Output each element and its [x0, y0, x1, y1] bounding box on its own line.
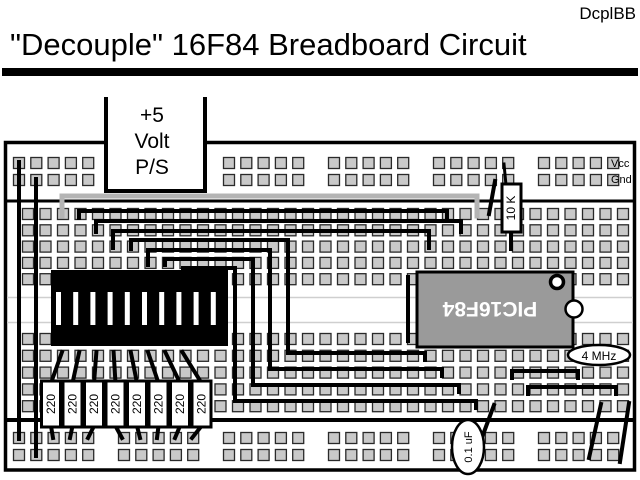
- breadboard-hole: [48, 158, 59, 169]
- breadboard-hole: [548, 350, 559, 361]
- series-resistor: 220: [63, 381, 82, 427]
- breadboard-hole: [608, 433, 619, 444]
- resistor-value-label: 220: [195, 394, 209, 414]
- breadboard-hole: [556, 433, 567, 444]
- breadboard-hole: [215, 350, 226, 361]
- breadboard-hole: [468, 158, 479, 169]
- breadboard-hole: [565, 209, 576, 220]
- breadboard-hole: [443, 241, 454, 252]
- pullup-resistor-label: 10 K: [504, 196, 518, 221]
- breadboard-hole: [600, 367, 611, 378]
- dip-switch-slot: [159, 292, 164, 325]
- breadboard-hole: [556, 450, 567, 461]
- breadboard-hole: [583, 274, 594, 285]
- breadboard-hole: [398, 175, 409, 186]
- title-rule: [2, 68, 638, 76]
- breadboard-hole: [65, 175, 76, 186]
- breadboard-hole: [373, 241, 384, 252]
- breadboard-hole: [303, 274, 314, 285]
- breadboard-hole: [539, 175, 550, 186]
- breadboard-hole: [373, 257, 384, 268]
- breadboard-hole: [583, 241, 594, 252]
- breadboard-hole: [241, 175, 252, 186]
- chip-notch: [566, 301, 583, 318]
- breadboard-hole: [40, 257, 51, 268]
- breadboard-hole: [513, 384, 524, 395]
- power-supply-line2: Volt: [134, 130, 169, 153]
- breadboard-hole: [434, 450, 445, 461]
- breadboard-hole: [224, 450, 235, 461]
- breadboard-hole: [408, 241, 419, 252]
- breadboard-hole: [485, 450, 496, 461]
- breadboard-hole: [275, 450, 286, 461]
- dip-switch-slot: [142, 292, 147, 325]
- breadboard-hole: [398, 433, 409, 444]
- breadboard-hole: [40, 241, 51, 252]
- resistor-top-lead: [94, 352, 96, 383]
- breadboard-hole: [530, 209, 541, 220]
- breadboard-hole: [583, 257, 594, 268]
- vcc-label: Vcc: [611, 158, 630, 170]
- breadboard-hole: [478, 225, 489, 236]
- breadboard-hole: [530, 225, 541, 236]
- resistor-value-label: 220: [130, 394, 144, 414]
- gnd-label: Gnd: [611, 174, 632, 186]
- breadboard-hole: [241, 450, 252, 461]
- breadboard-hole: [618, 241, 629, 252]
- breadboard-hole: [530, 241, 541, 252]
- breadboard-hole: [188, 450, 199, 461]
- breadboard-hole: [495, 350, 506, 361]
- pin1-dot: [551, 276, 564, 289]
- breadboard-hole: [119, 450, 130, 461]
- breadboard-hole: [539, 450, 550, 461]
- breadboard-hole: [329, 175, 340, 186]
- breadboard-hole: [215, 401, 226, 412]
- breadboard-hole: [83, 175, 94, 186]
- capacitor-label: 0.1 uF: [463, 431, 475, 462]
- breadboard-hole: [320, 274, 331, 285]
- breadboard-hole: [495, 367, 506, 378]
- breadboard-hole: [58, 225, 69, 236]
- capacitor-callout: 0.1 uF: [452, 420, 484, 474]
- breadboard-hole: [58, 257, 69, 268]
- breadboard-hole: [215, 367, 226, 378]
- breadboard-hole: [443, 367, 454, 378]
- breadboard-hole: [380, 450, 391, 461]
- breadboard-hole: [136, 450, 147, 461]
- breadboard-hole: [215, 384, 226, 395]
- breadboard-hole: [303, 334, 314, 345]
- breadboard-hole: [565, 257, 576, 268]
- breadboard-hole: [398, 450, 409, 461]
- breadboard-hole: [495, 241, 506, 252]
- breadboard-hole: [390, 274, 401, 285]
- breadboard-hole: [460, 209, 471, 220]
- breadboard-hole: [478, 367, 489, 378]
- breadboard-hole: [495, 257, 506, 268]
- dip-switch-slot: [56, 292, 61, 325]
- breadboard-hole: [275, 175, 286, 186]
- pullup-top-lead: [504, 164, 506, 185]
- breadboard-diagram-page: DcplBB "Decouple" 16F84 Breadboard Circu…: [0, 0, 640, 480]
- breadboard-hole: [258, 433, 269, 444]
- breadboard-hole: [65, 450, 76, 461]
- breadboard-hole: [513, 257, 524, 268]
- series-resistor: 220: [128, 381, 147, 427]
- breadboard-hole: [565, 241, 576, 252]
- breadboard-hole: [31, 158, 42, 169]
- breadboard-hole: [548, 401, 559, 412]
- circuit-diagram: DcplBB "Decouple" 16F84 Breadboard Circu…: [0, 0, 640, 480]
- resonator-label: 4 MHz: [582, 349, 617, 363]
- breadboard-hole: [478, 257, 489, 268]
- breadboard-hole: [224, 433, 235, 444]
- breadboard-hole: [565, 225, 576, 236]
- doc-code: DcplBB: [579, 4, 636, 23]
- breadboard-hole: [40, 334, 51, 345]
- breadboard-hole: [128, 257, 139, 268]
- breadboard-hole: [58, 367, 69, 378]
- breadboard-hole: [556, 158, 567, 169]
- breadboard-hole: [548, 257, 559, 268]
- breadboard-hole: [93, 241, 104, 252]
- breadboard-hole: [398, 158, 409, 169]
- breadboard-hole: [513, 401, 524, 412]
- breadboard-hole: [380, 158, 391, 169]
- breadboard-hole: [390, 334, 401, 345]
- breadboard-hole: [513, 350, 524, 361]
- breadboard-hole: [583, 367, 594, 378]
- resistor-value-label: 220: [109, 394, 123, 414]
- breadboard-hole: [618, 225, 629, 236]
- dip-switch-slot: [73, 292, 78, 325]
- dip-switch-slot: [108, 292, 113, 325]
- breadboard-hole: [530, 350, 541, 361]
- breadboard-hole: [573, 450, 584, 461]
- breadboard-hole: [468, 175, 479, 186]
- breadboard-hole: [338, 257, 349, 268]
- breadboard-hole: [373, 274, 384, 285]
- breadboard-hole: [573, 158, 584, 169]
- breadboard-hole: [346, 433, 357, 444]
- dip-switch-slot: [125, 292, 130, 325]
- breadboard-hole: [443, 350, 454, 361]
- breadboard-hole: [565, 401, 576, 412]
- breadboard-hole: [618, 209, 629, 220]
- breadboard-hole: [170, 450, 181, 461]
- breadboard-hole: [434, 158, 445, 169]
- breadboard-hole: [503, 450, 514, 461]
- breadboard-hole: [451, 175, 462, 186]
- breadboard-hole: [23, 241, 34, 252]
- breadboard-hole: [48, 450, 59, 461]
- breadboard-hole: [434, 433, 445, 444]
- breadboard-hole: [618, 367, 629, 378]
- breadboard-hole: [618, 384, 629, 395]
- breadboard-hole: [258, 175, 269, 186]
- breadboard-hole: [224, 158, 235, 169]
- breadboard-hole: [548, 241, 559, 252]
- breadboard-hole: [478, 384, 489, 395]
- breadboard-hole: [303, 241, 314, 252]
- breadboard-hole: [23, 350, 34, 361]
- breadboard-hole: [363, 433, 374, 444]
- breadboard-hole: [608, 450, 619, 461]
- breadboard-hole: [478, 350, 489, 361]
- breadboard-hole: [380, 433, 391, 444]
- breadboard-hole: [590, 175, 601, 186]
- breadboard-hole: [583, 334, 594, 345]
- breadboard-hole: [83, 158, 94, 169]
- breadboard-hole: [338, 241, 349, 252]
- breadboard-hole: [460, 257, 471, 268]
- breadboard-hole: [556, 175, 567, 186]
- breadboard-hole: [425, 257, 436, 268]
- series-resistors: 220220220220220220220220: [42, 381, 212, 427]
- breadboard-hole: [600, 241, 611, 252]
- breadboard-hole: [65, 158, 76, 169]
- breadboard-hole: [293, 175, 304, 186]
- breadboard-hole: [460, 350, 471, 361]
- breadboard-hole: [93, 257, 104, 268]
- mcu-chip: PIC16F84: [417, 272, 583, 347]
- dip-switch-slot: [90, 292, 95, 325]
- dip-switch-slot: [194, 292, 199, 325]
- breadboard-hole: [460, 367, 471, 378]
- breadboard-hole: [329, 450, 340, 461]
- breadboard-hole: [618, 334, 629, 345]
- series-resistor: 220: [42, 381, 61, 427]
- resistor-top-lead: [114, 352, 116, 383]
- breadboard-hole: [320, 334, 331, 345]
- breadboard-hole: [23, 384, 34, 395]
- dip-switch-slot: [176, 292, 181, 325]
- breadboard-hole: [539, 433, 550, 444]
- resistor-value-label: 220: [152, 394, 166, 414]
- breadboard-hole: [355, 274, 366, 285]
- breadboard-hole: [443, 257, 454, 268]
- breadboard-hole: [478, 241, 489, 252]
- dip-switch-slot: [211, 292, 216, 325]
- breadboard-hole: [600, 334, 611, 345]
- breadboard-hole: [530, 401, 541, 412]
- power-supply-line3: P/S: [135, 156, 169, 179]
- breadboard-hole: [600, 274, 611, 285]
- breadboard-hole: [180, 367, 191, 378]
- breadboard-hole: [548, 209, 559, 220]
- breadboard-hole: [40, 367, 51, 378]
- breadboard-hole: [40, 209, 51, 220]
- breadboard-hole: [434, 175, 445, 186]
- breadboard-hole: [363, 158, 374, 169]
- breadboard-hole: [14, 450, 25, 461]
- breadboard-hole: [495, 401, 506, 412]
- breadboard-hole: [23, 367, 34, 378]
- breadboard-hole: [618, 257, 629, 268]
- resonator-callout: 4 MHz: [568, 345, 630, 365]
- breadboard-hole: [23, 334, 34, 345]
- breadboard-hole: [58, 241, 69, 252]
- breadboard-hole: [83, 450, 94, 461]
- breadboard-hole: [390, 257, 401, 268]
- breadboard-hole: [530, 257, 541, 268]
- breadboard-hole: [75, 257, 86, 268]
- breadboard-hole: [583, 401, 594, 412]
- breadboard-hole: [23, 401, 34, 412]
- breadboard-hole: [355, 257, 366, 268]
- breadboard-hole: [513, 241, 524, 252]
- page-title: "Decouple" 16F84 Breadboard Circuit: [10, 27, 527, 62]
- breadboard-hole: [600, 225, 611, 236]
- breadboard-hole: [329, 158, 340, 169]
- series-resistor: 220: [85, 381, 104, 427]
- series-resistor: 220: [149, 381, 168, 427]
- resistor-value-label: 220: [87, 394, 101, 414]
- power-supply-line1: +5: [140, 104, 164, 127]
- breadboard-hole: [153, 450, 164, 461]
- dip-switch: [51, 270, 228, 346]
- breadboard-hole: [110, 257, 121, 268]
- breadboard-hole: [573, 175, 584, 186]
- breadboard-hole: [539, 158, 550, 169]
- breadboard-hole: [583, 209, 594, 220]
- resistor-value-label: 220: [66, 394, 80, 414]
- breadboard-hole: [485, 433, 496, 444]
- breadboard-hole: [478, 401, 489, 412]
- breadboard-hole: [320, 241, 331, 252]
- resistor-value-label: 220: [173, 394, 187, 414]
- breadboard-hole: [320, 257, 331, 268]
- breadboard-hole: [503, 433, 514, 444]
- breadboard-hole: [338, 274, 349, 285]
- breadboard-hole: [380, 175, 391, 186]
- breadboard-hole: [618, 274, 629, 285]
- breadboard-hole: [224, 175, 235, 186]
- breadboard-hole: [460, 384, 471, 395]
- breadboard-hole: [23, 225, 34, 236]
- resistor-value-label: 220: [44, 394, 58, 414]
- breadboard-hole: [363, 175, 374, 186]
- breadboard-hole: [241, 433, 252, 444]
- breadboard-hole: [355, 241, 366, 252]
- breadboard-hole: [198, 350, 209, 361]
- breadboard-hole: [75, 225, 86, 236]
- breadboard-hole: [258, 450, 269, 461]
- breadboard-hole: [451, 158, 462, 169]
- breadboard-hole: [303, 257, 314, 268]
- mcu-label: PIC16F84: [442, 297, 537, 320]
- breadboard-hole: [275, 158, 286, 169]
- series-resistor: 220: [192, 381, 211, 427]
- breadboard-hole: [408, 257, 419, 268]
- breadboard-hole: [460, 241, 471, 252]
- breadboard-hole: [258, 158, 269, 169]
- breadboard-hole: [293, 433, 304, 444]
- breadboard-hole: [23, 209, 34, 220]
- breadboard-hole: [355, 334, 366, 345]
- series-resistor: 220: [106, 381, 125, 427]
- breadboard-hole: [338, 334, 349, 345]
- breadboard-hole: [573, 433, 584, 444]
- breadboard-hole: [40, 274, 51, 285]
- breadboard-hole: [373, 334, 384, 345]
- breadboard-hole: [23, 274, 34, 285]
- breadboard-hole: [275, 433, 286, 444]
- breadboard-hole: [329, 433, 340, 444]
- breadboard-hole: [443, 225, 454, 236]
- series-resistor: 220: [171, 381, 190, 427]
- breadboard-hole: [485, 158, 496, 169]
- breadboard-hole: [600, 209, 611, 220]
- breadboard-hole: [583, 225, 594, 236]
- breadboard-hole: [23, 257, 34, 268]
- breadboard-hole: [390, 241, 401, 252]
- breadboard-hole: [293, 450, 304, 461]
- breadboard-hole: [346, 158, 357, 169]
- breadboard-hole: [600, 257, 611, 268]
- breadboard-hole: [75, 241, 86, 252]
- breadboard-hole: [548, 225, 559, 236]
- breadboard-hole: [346, 450, 357, 461]
- breadboard-hole: [48, 175, 59, 186]
- breadboard-hole: [241, 158, 252, 169]
- breadboard-hole: [346, 175, 357, 186]
- power-supply-box: +5 Volt P/S: [106, 97, 205, 191]
- breadboard-hole: [293, 158, 304, 169]
- breadboard-hole: [590, 158, 601, 169]
- breadboard-hole: [40, 350, 51, 361]
- breadboard-hole: [363, 450, 374, 461]
- breadboard-hole: [495, 384, 506, 395]
- breadboard-hole: [40, 225, 51, 236]
